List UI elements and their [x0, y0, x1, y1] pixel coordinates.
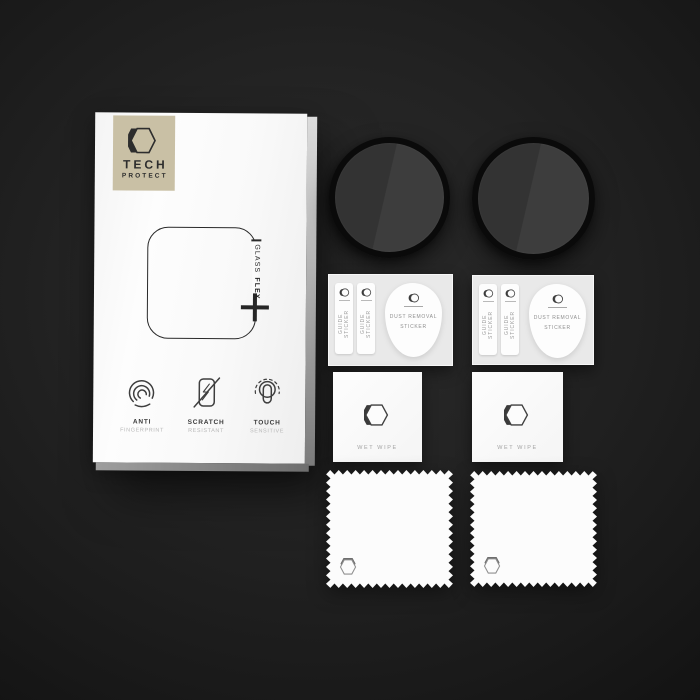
- circle-crescent-logo-icon: [552, 293, 564, 305]
- hexagon-emboss-logo-icon: [483, 557, 502, 574]
- product-name-label: GLASSFLEX: [253, 244, 260, 299]
- scratch-phone-icon: [189, 375, 223, 411]
- watch-shape-outline: GLASSFLEX: [147, 227, 257, 340]
- edge-tick: [251, 239, 261, 241]
- divider-line: [361, 300, 372, 301]
- feature-subtitle: RESISTANT: [177, 427, 235, 433]
- sticker-card-2: GUIDE STICKER GUIDE STICKER DUST REMOVAL…: [472, 275, 594, 365]
- guide-sticker-label: GUIDE STICKER: [482, 304, 494, 346]
- wet-wipe-1: WET WIPE: [333, 372, 422, 462]
- guide-sticker: GUIDE STICKER: [335, 283, 353, 354]
- box-side-edge: [305, 117, 317, 466]
- guide-sticker: GUIDE STICKER: [479, 284, 497, 355]
- feature-title: TOUCH: [238, 419, 296, 426]
- guide-sticker: GUIDE STICKER: [357, 283, 375, 354]
- microfiber-cloth-2: [470, 471, 597, 587]
- wet-wipe-label: WET WIPE: [472, 445, 563, 451]
- feature-title: ANTI: [113, 418, 171, 425]
- guide-sticker-label: GUIDE STICKER: [360, 303, 372, 345]
- brand-badge: TECH PROTECT: [113, 115, 176, 190]
- feature-scratch-resistant: SCRATCH RESISTANT: [177, 375, 235, 434]
- circle-crescent-logo-icon: [505, 288, 516, 299]
- tech-protect-hexagon-icon: [128, 127, 160, 153]
- divider-line: [548, 307, 567, 308]
- box-front: TECH PROTECT GLASSFLEX ANTI: [93, 112, 307, 463]
- hexagon-crescent-logo-icon: [364, 403, 391, 427]
- cloth-wrap: [326, 470, 453, 588]
- divider-line: [483, 301, 494, 302]
- feature-subtitle: SENSITIVE: [238, 428, 296, 434]
- feature-touch-sensitive: TOUCH SENSITIVE: [238, 375, 296, 434]
- cloth-wrap: [470, 471, 597, 587]
- guide-sticker: GUIDE STICKER: [501, 284, 519, 355]
- guide-sticker-label: GUIDE STICKER: [504, 304, 516, 346]
- brand-name: TECH: [116, 157, 175, 171]
- circle-crescent-logo-icon: [483, 288, 494, 299]
- glass-protector-2: [472, 137, 595, 260]
- divider-line: [505, 301, 516, 302]
- feature-subtitle: FINGERPRINT: [113, 427, 171, 433]
- plus-icon: [241, 293, 269, 321]
- product-photo: TECH PROTECT GLASSFLEX ANTI: [0, 0, 700, 700]
- circle-crescent-logo-icon: [339, 287, 350, 298]
- wet-wipe-2: WET WIPE: [472, 372, 563, 462]
- glass-protector-1: [329, 137, 450, 258]
- fingerprint-icon: [125, 374, 159, 410]
- touch-finger-icon: [250, 375, 284, 411]
- sticker-card-1: GUIDE STICKER GUIDE STICKER DUST REMOVAL…: [328, 274, 453, 366]
- dust-removal-sticker: DUST REMOVAL STICKER: [529, 284, 586, 358]
- dust-removal-label-line2: STICKER: [529, 324, 586, 334]
- microfiber-cloth-1: [326, 470, 453, 588]
- hexagon-crescent-logo-icon: [504, 403, 531, 427]
- brand-subname: PROTECT: [115, 172, 175, 179]
- dust-removal-sticker: DUST REMOVAL STICKER: [385, 283, 442, 357]
- dust-removal-label-line2: STICKER: [385, 323, 442, 333]
- box-bottom-edge: [96, 462, 309, 471]
- guide-sticker-label: GUIDE STICKER: [338, 303, 350, 345]
- circle-crescent-logo-icon: [408, 292, 420, 304]
- feature-anti-fingerprint: ANTI FINGERPRINT: [113, 374, 171, 433]
- feature-title: SCRATCH: [177, 419, 235, 426]
- divider-line: [339, 300, 350, 301]
- product-box: TECH PROTECT GLASSFLEX ANTI: [93, 112, 319, 472]
- divider-line: [404, 306, 423, 307]
- product-name-regular: GLASS: [253, 244, 260, 273]
- wet-wipe-label: WET WIPE: [333, 445, 422, 451]
- dust-removal-label-line1: DUST REMOVAL: [385, 313, 442, 323]
- feature-icons-row: ANTI FINGERPRINT SCRATCH RESISTANT: [93, 374, 305, 445]
- circle-crescent-logo-icon: [361, 287, 372, 298]
- hexagon-emboss-logo-icon: [339, 558, 358, 575]
- dust-removal-label-line1: DUST REMOVAL: [529, 314, 586, 324]
